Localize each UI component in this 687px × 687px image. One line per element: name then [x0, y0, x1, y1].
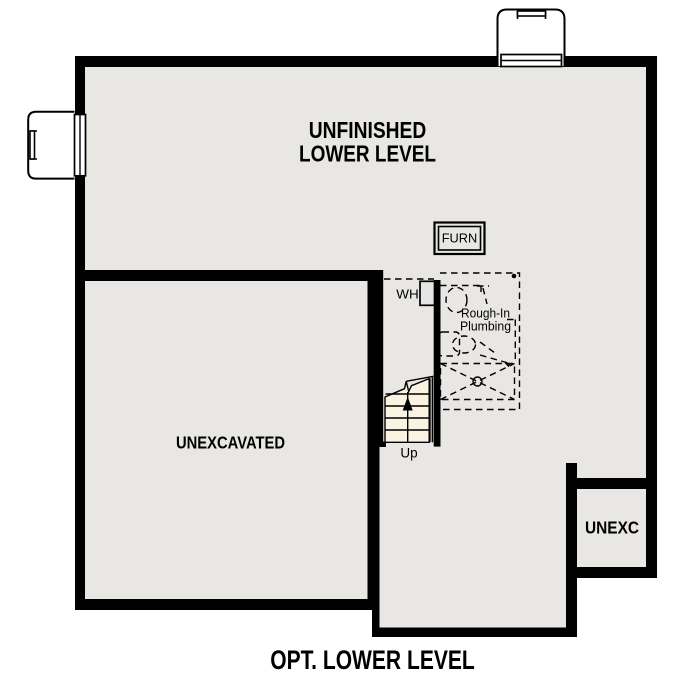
svg-text:UNEXC: UNEXC	[585, 518, 639, 538]
svg-text:WH: WH	[396, 288, 419, 302]
svg-text:LOWER LEVEL: LOWER LEVEL	[299, 141, 436, 167]
svg-text:UNFINISHED: UNFINISHED	[309, 117, 427, 143]
svg-text:Up: Up	[400, 446, 417, 461]
svg-text:OPT. LOWER LEVEL: OPT. LOWER LEVEL	[270, 645, 475, 675]
svg-text:FURN: FURN	[442, 232, 478, 246]
svg-text:Plumbing: Plumbing	[460, 319, 511, 334]
svg-text:UNEXCAVATED: UNEXCAVATED	[176, 433, 285, 453]
